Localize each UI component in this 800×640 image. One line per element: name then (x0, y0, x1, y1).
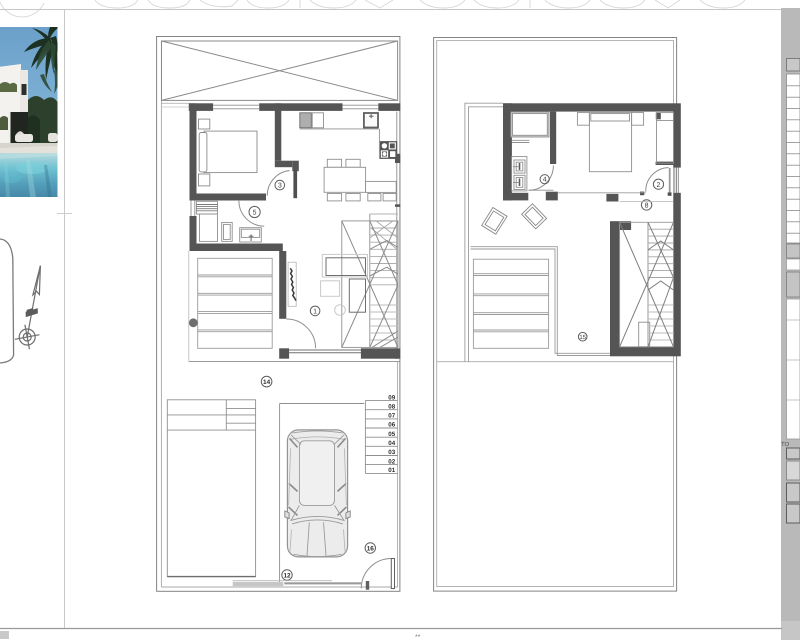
svg-text:03: 03 (388, 449, 395, 456)
svg-text:06: 06 (388, 422, 395, 429)
svg-text:1: 1 (313, 308, 317, 315)
svg-text:05: 05 (388, 431, 395, 438)
svg-text:16: 16 (367, 546, 375, 553)
svg-text:5: 5 (253, 210, 257, 217)
svg-text:**: ** (415, 634, 421, 640)
svg-text:08: 08 (388, 403, 395, 410)
svg-text:15: 15 (579, 334, 586, 341)
svg-text:07: 07 (388, 413, 395, 420)
svg-text:04: 04 (388, 440, 395, 447)
svg-text:3: 3 (278, 183, 282, 190)
svg-text:2: 2 (657, 182, 661, 189)
svg-text:01: 01 (388, 467, 395, 474)
svg-text:8: 8 (645, 203, 649, 210)
svg-text:4: 4 (543, 177, 547, 184)
svg-text:14: 14 (263, 379, 271, 386)
svg-text:TO: TO (781, 441, 790, 448)
svg-text:09: 09 (388, 394, 395, 401)
svg-text:02: 02 (388, 458, 395, 465)
svg-text:12: 12 (283, 573, 291, 580)
